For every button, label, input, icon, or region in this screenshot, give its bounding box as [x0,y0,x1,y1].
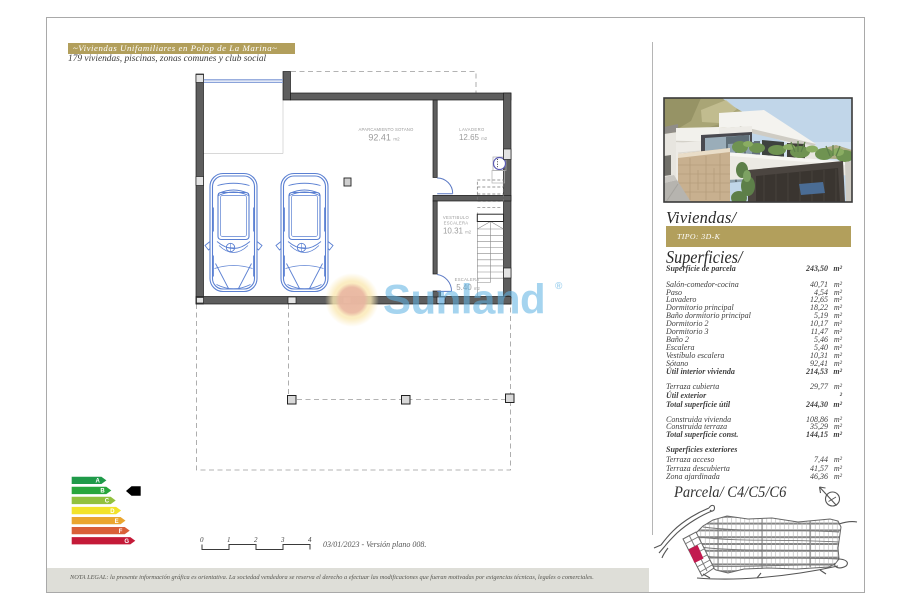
svg-text:LAVADERO: LAVADERO [459,127,485,132]
svg-text:92.41 m2: 92.41 m2 [368,133,400,143]
svg-text:4: 4 [308,536,312,544]
svg-text:3: 3 [280,536,285,544]
svg-text:A: A [96,479,101,485]
svg-text:ESCALERA: ESCALERA [444,221,469,226]
svg-text:2: 2 [254,536,258,544]
svg-text:VESTIBULO: VESTIBULO [443,215,470,220]
svg-text:1: 1 [227,536,231,544]
svg-text:C: C [105,499,110,505]
svg-text:10.31 m2: 10.31 m2 [443,227,472,236]
svg-text:APARCAMIENTO SOTANO: APARCAMIENTO SOTANO [359,127,414,132]
svg-text:B: B [100,489,105,495]
svg-text:Sunland: Sunland [383,276,545,323]
svg-text:G: G [124,539,129,545]
svg-text:®: ® [555,281,563,292]
svg-text:12.65 m2: 12.65 m2 [459,133,488,142]
svg-text:F: F [119,529,123,535]
svg-text:0: 0 [200,536,204,544]
svg-text:D: D [110,509,115,515]
svg-text:E: E [115,519,119,525]
